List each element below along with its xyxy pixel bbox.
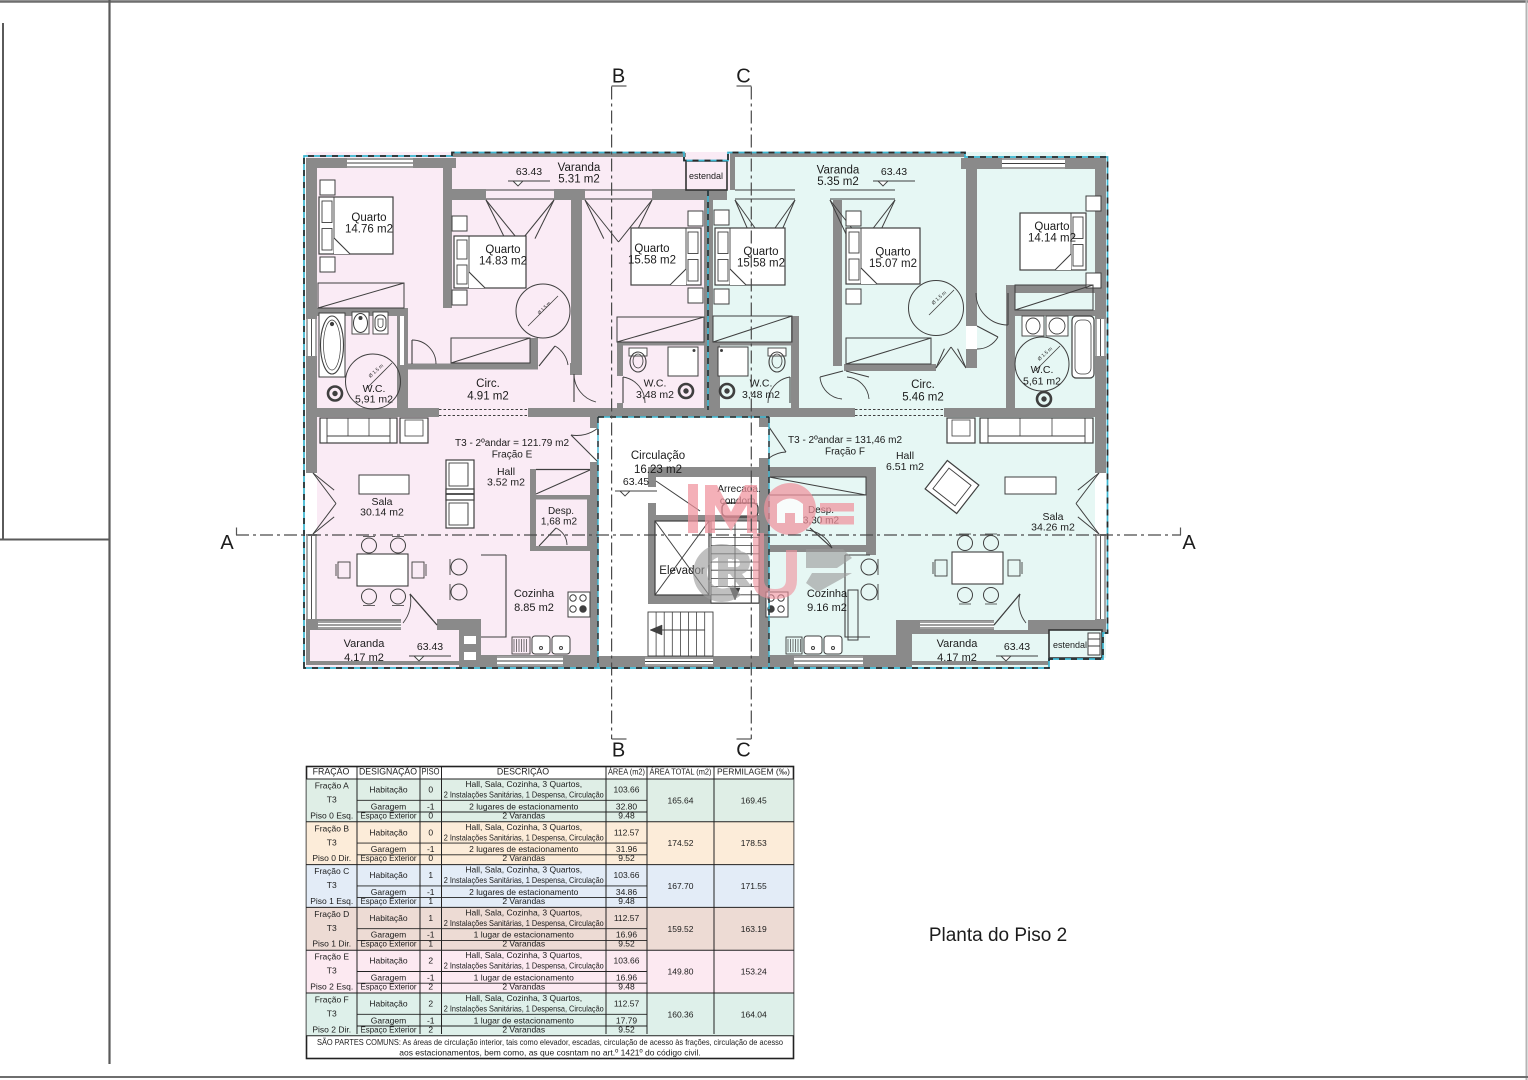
svg-text:112.57: 112.57 <box>614 913 640 923</box>
svg-text:174.52: 174.52 <box>668 838 694 848</box>
svg-text:160.36: 160.36 <box>668 1009 694 1019</box>
svg-text:aos estacionamentos, bem como,: aos estacionamentos, bem como, as que co… <box>399 1048 701 1058</box>
svg-text:1: 1 <box>428 896 433 906</box>
svg-text:T3: T3 <box>327 923 337 933</box>
svg-text:Piso 2 Esq.: Piso 2 Esq. <box>310 982 353 992</box>
svg-text:Fração F: Fração F <box>315 995 349 1005</box>
svg-text:DESIGNAÇÃO: DESIGNAÇÃO <box>359 767 417 777</box>
svg-text:Fração C: Fração C <box>314 866 349 876</box>
svg-text:2: 2 <box>428 956 433 966</box>
svg-text:T3 - 2ºandar = 131,46 m2: T3 - 2ºandar = 131,46 m2 <box>788 435 902 446</box>
svg-text:B: B <box>612 740 625 762</box>
svg-text:9.48: 9.48 <box>618 982 635 992</box>
svg-text:4.17 m2: 4.17 m2 <box>344 652 384 664</box>
svg-text:T3: T3 <box>327 880 337 890</box>
svg-text:1: 1 <box>428 870 433 880</box>
svg-text:6.51 m2: 6.51 m2 <box>886 461 924 473</box>
svg-text:3.52 m2: 3.52 m2 <box>487 477 525 489</box>
svg-text:T3: T3 <box>327 966 337 976</box>
svg-text:2 Instalações Sanitárias, 1 De: 2 Instalações Sanitárias, 1 Despensa, Ci… <box>444 790 604 800</box>
svg-text:63.43: 63.43 <box>881 166 907 178</box>
svg-text:149.80: 149.80 <box>668 967 694 977</box>
svg-text:112.57: 112.57 <box>614 999 640 1009</box>
svg-text:103.66: 103.66 <box>614 870 640 880</box>
svg-text:Piso 1 Dir.: Piso 1 Dir. <box>312 939 351 949</box>
svg-text:63.43: 63.43 <box>516 166 542 178</box>
svg-text:Habitação: Habitação <box>369 870 408 880</box>
svg-text:W.C.: W.C. <box>1031 364 1054 376</box>
svg-text:169.45: 169.45 <box>741 795 767 805</box>
svg-text:165.64: 165.64 <box>668 795 694 805</box>
svg-text:Hall, Sala, Cozinha, 3 Quartos: Hall, Sala, Cozinha, 3 Quartos, <box>465 779 582 789</box>
svg-text:Fração A: Fração A <box>315 781 349 791</box>
svg-text:T3: T3 <box>327 1009 337 1019</box>
svg-text:63.45: 63.45 <box>623 476 649 488</box>
svg-text:2 Instalações Sanitárias, 1 De: 2 Instalações Sanitárias, 1 Despensa, Ci… <box>444 832 604 842</box>
svg-text:Quarto: Quarto <box>1034 221 1069 233</box>
svg-text:Cozinha: Cozinha <box>807 588 848 600</box>
svg-text:Circulação: Circulação <box>631 450 685 462</box>
svg-text:3,48 m2: 3,48 m2 <box>742 389 780 401</box>
svg-text:Quarto: Quarto <box>485 244 520 256</box>
svg-text:2 Varandas: 2 Varandas <box>502 982 545 992</box>
svg-text:5.31 m2: 5.31 m2 <box>558 174 600 186</box>
svg-text:5,61 m2: 5,61 m2 <box>1023 376 1061 388</box>
svg-text:63.43: 63.43 <box>1004 641 1030 653</box>
svg-text:W.C.: W.C. <box>644 378 667 390</box>
svg-text:A: A <box>220 532 234 554</box>
svg-text:63.43: 63.43 <box>417 641 443 653</box>
svg-text:2 Instalações Sanitárias, 1 De: 2 Instalações Sanitárias, 1 Despensa, Ci… <box>444 918 604 928</box>
svg-text:Hall, Sala, Cozinha, 3 Quartos: Hall, Sala, Cozinha, 3 Quartos, <box>465 822 582 832</box>
svg-text:14.83 m2: 14.83 m2 <box>479 256 527 268</box>
svg-text:Habitação: Habitação <box>369 913 408 923</box>
svg-text:estendal: estendal <box>689 171 723 181</box>
svg-text:Circ.: Circ. <box>911 379 935 391</box>
svg-text:159.52: 159.52 <box>668 924 694 934</box>
svg-text:2 Instalações Sanitárias, 1 De: 2 Instalações Sanitárias, 1 Despensa, Ci… <box>444 961 604 971</box>
svg-text:8.85 m2: 8.85 m2 <box>514 602 554 614</box>
svg-text:171.55: 171.55 <box>741 881 767 891</box>
svg-text:163.19: 163.19 <box>741 924 767 934</box>
svg-text:Quarto: Quarto <box>743 246 778 258</box>
svg-text:B: B <box>612 66 625 88</box>
svg-text:Quarto: Quarto <box>634 243 669 255</box>
svg-text:0: 0 <box>428 853 433 863</box>
svg-text:16.23 m2: 16.23 m2 <box>634 464 682 476</box>
svg-text:4.17 m2: 4.17 m2 <box>937 652 977 664</box>
svg-text:Quarto: Quarto <box>351 212 386 224</box>
svg-text:T3: T3 <box>327 795 337 805</box>
svg-text:FRAÇÃO: FRAÇÃO <box>313 767 350 777</box>
svg-text:Espaço Exterior: Espaço Exterior <box>361 810 417 820</box>
svg-text:2: 2 <box>428 1024 433 1034</box>
svg-text:34.26 m2: 34.26 m2 <box>1031 522 1075 534</box>
svg-text:Varanda: Varanda <box>344 638 386 650</box>
svg-text:14.76 m2: 14.76 m2 <box>345 224 393 236</box>
svg-text:9.48: 9.48 <box>618 810 635 820</box>
svg-text:PISO: PISO <box>422 767 440 777</box>
svg-text:Varanda: Varanda <box>817 165 860 177</box>
svg-text:Habitação: Habitação <box>369 999 408 1009</box>
svg-text:Espaço Exterior: Espaço Exterior <box>361 982 417 992</box>
svg-text:W.C.: W.C. <box>750 378 773 390</box>
svg-text:Hall, Sala, Cozinha, 3 Quartos: Hall, Sala, Cozinha, 3 Quartos, <box>465 865 582 875</box>
svg-text:Circ.: Circ. <box>476 378 500 390</box>
svg-text:Fração D: Fração D <box>314 909 349 919</box>
svg-text:Espaço Exterior: Espaço Exterior <box>361 853 417 863</box>
svg-text:2 Varandas: 2 Varandas <box>502 896 545 906</box>
svg-text:3,48 m2: 3,48 m2 <box>636 389 674 401</box>
svg-text:2 Varandas: 2 Varandas <box>502 939 545 949</box>
svg-text:15.58 m2: 15.58 m2 <box>628 255 676 267</box>
svg-text:2 Varandas: 2 Varandas <box>502 1024 545 1034</box>
svg-text:Quarto: Quarto <box>875 247 910 259</box>
svg-text:5.46 m2: 5.46 m2 <box>902 392 944 404</box>
svg-text:9.16 m2: 9.16 m2 <box>807 602 847 614</box>
svg-text:Habitação: Habitação <box>369 956 408 966</box>
svg-text:15.58 m2: 15.58 m2 <box>737 258 785 270</box>
svg-text:14.14 m2: 14.14 m2 <box>1028 233 1076 245</box>
svg-text:2 Instalações Sanitárias, 1 De: 2 Instalações Sanitárias, 1 Despensa, Ci… <box>444 1004 604 1014</box>
svg-text:2: 2 <box>428 999 433 1009</box>
svg-text:5,91 m2: 5,91 m2 <box>355 394 393 406</box>
svg-text:PERMILAGEM (‰): PERMILAGEM (‰) <box>717 768 790 777</box>
svg-text:Hall, Sala, Cozinha, 3 Quartos: Hall, Sala, Cozinha, 3 Quartos, <box>465 993 582 1003</box>
svg-text:Piso 1 Esq.: Piso 1 Esq. <box>310 896 353 906</box>
svg-text:103.66: 103.66 <box>614 956 640 966</box>
svg-text:Fração E: Fração E <box>492 450 533 461</box>
svg-text:15.07 m2: 15.07 m2 <box>869 258 917 270</box>
svg-text:1: 1 <box>428 939 433 949</box>
svg-text:0: 0 <box>428 827 433 837</box>
svg-text:Varanda: Varanda <box>937 638 979 650</box>
svg-text:9.52: 9.52 <box>618 853 635 863</box>
svg-text:164.04: 164.04 <box>741 1009 767 1019</box>
svg-text:Fração F: Fração F <box>825 447 865 458</box>
svg-text:9.52: 9.52 <box>618 939 635 949</box>
svg-text:C: C <box>736 740 750 762</box>
svg-text:Espaço Exterior: Espaço Exterior <box>361 939 417 949</box>
svg-text:Habitação: Habitação <box>369 827 408 837</box>
svg-text:A: A <box>1182 532 1196 554</box>
svg-text:ÁREA (m2): ÁREA (m2) <box>608 767 645 777</box>
svg-text:Piso 0 Esq.: Piso 0 Esq. <box>310 810 353 820</box>
svg-text:0: 0 <box>428 785 433 795</box>
svg-text:ÁREA TOTAL (m2): ÁREA TOTAL (m2) <box>650 767 712 777</box>
svg-text:Varanda: Varanda <box>558 162 601 174</box>
svg-text:Espaço Exterior: Espaço Exterior <box>361 1024 417 1034</box>
svg-text:DESCRIÇÃO: DESCRIÇÃO <box>497 767 549 777</box>
svg-text:Piso 2 Dir.: Piso 2 Dir. <box>312 1024 351 1034</box>
svg-text:2 Instalações Sanitárias, 1 De: 2 Instalações Sanitárias, 1 Despensa, Ci… <box>444 875 604 885</box>
svg-text:Fração E: Fração E <box>315 952 350 962</box>
svg-text:SÃO PARTES COMUNS: As áreas de: SÃO PARTES COMUNS: As áreas de circulaçã… <box>317 1037 783 1047</box>
svg-text:C: C <box>736 66 750 88</box>
svg-text:153.24: 153.24 <box>741 967 767 977</box>
svg-text:Espaço Exterior: Espaço Exterior <box>361 896 417 906</box>
svg-text:Hall, Sala, Cozinha, 3 Quartos: Hall, Sala, Cozinha, 3 Quartos, <box>465 950 582 960</box>
svg-text:4.91 m2: 4.91 m2 <box>467 391 509 403</box>
svg-text:Piso 0 Dir.: Piso 0 Dir. <box>312 853 351 863</box>
svg-text:Habitação: Habitação <box>369 785 408 795</box>
svg-text:178.53: 178.53 <box>741 838 767 848</box>
svg-text:Hall, Sala, Cozinha, 3 Quartos: Hall, Sala, Cozinha, 3 Quartos, <box>465 907 582 917</box>
svg-text:9.52: 9.52 <box>618 1024 635 1034</box>
svg-text:Fração B: Fração B <box>315 823 350 833</box>
svg-text:Desp.: Desp. <box>548 506 574 517</box>
svg-text:1: 1 <box>428 913 433 923</box>
svg-text:estendal: estendal <box>1053 640 1087 650</box>
svg-text:112.57: 112.57 <box>614 827 640 837</box>
svg-text:30.14 m2: 30.14 m2 <box>360 507 404 519</box>
svg-text:T3: T3 <box>327 837 337 847</box>
svg-text:9.48: 9.48 <box>618 896 635 906</box>
svg-text:167.70: 167.70 <box>668 881 694 891</box>
svg-text:1,68 m2: 1,68 m2 <box>541 517 578 528</box>
svg-text:Planta do Piso 2: Planta do Piso 2 <box>929 925 1067 946</box>
svg-text:2 Varandas: 2 Varandas <box>502 810 545 820</box>
svg-text:Cozinha: Cozinha <box>514 588 555 600</box>
svg-text:0: 0 <box>428 810 433 820</box>
svg-text:T3 - 2ºandar = 121.79 m2: T3 - 2ºandar = 121.79 m2 <box>455 438 569 449</box>
svg-text:103.66: 103.66 <box>614 785 640 795</box>
svg-text:2: 2 <box>428 982 433 992</box>
svg-text:2 Varandas: 2 Varandas <box>502 853 545 863</box>
svg-text:5.35 m2: 5.35 m2 <box>817 176 859 188</box>
